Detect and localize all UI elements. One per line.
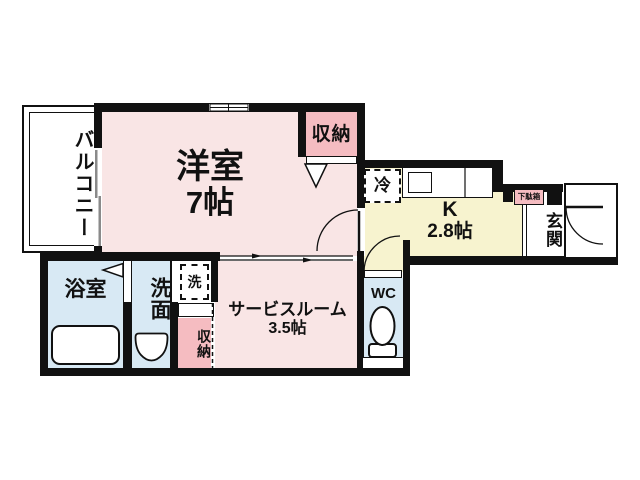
bath-door-channel <box>123 261 132 302</box>
top-window-gap <box>209 104 249 111</box>
wc-door-bar <box>364 270 402 278</box>
bathtub <box>51 325 120 365</box>
refrigerator-label: 冷 <box>374 177 391 195</box>
kitchen-size: 2.8帖 <box>390 222 510 242</box>
western-room-floor-strip <box>218 252 357 256</box>
wall-wash-closet <box>170 302 178 368</box>
wall-wc-right <box>403 240 410 376</box>
western-room-label: 洋室 7帖 <box>95 150 325 219</box>
washer-box: 洗 <box>180 264 209 300</box>
wall-bottom-left <box>40 368 410 376</box>
kitchen-sink <box>408 172 432 193</box>
service-room-name: サービスルーム <box>214 301 361 319</box>
service-room-label: サービスルーム 3.5帖 <box>214 301 361 338</box>
wall-washer-right <box>211 261 218 302</box>
closet-bottom-label: 収納 <box>178 321 211 367</box>
closet-top-label: 収納 <box>304 125 359 145</box>
washer-label: 洗 <box>188 275 202 290</box>
shoe-cabinet: 下駄箱 <box>514 189 544 205</box>
refrigerator-box: 冷 <box>364 169 401 203</box>
service-room-size: 3.5帖 <box>214 321 361 338</box>
front-door-recess <box>564 183 618 259</box>
wall-middle-left <box>40 252 220 261</box>
floor-plan: 冷 洗 下駄箱 <box>0 0 640 480</box>
western-room-name: 洋室 <box>95 150 325 186</box>
kitchen-name: K <box>390 199 510 221</box>
kitchen-label: K 2.8帖 <box>390 199 510 242</box>
wall-bath-wash-lower <box>123 302 132 368</box>
wc-label: WC <box>364 286 403 302</box>
wall-outer-left-lower <box>40 252 48 376</box>
washroom-label: 洗面 <box>132 268 170 330</box>
western-room-size: 7帖 <box>95 187 325 220</box>
wc-bottom-vent <box>362 357 404 369</box>
bathroom-label: 浴室 <box>48 279 123 301</box>
shoe-cabinet-label: 下駄箱 <box>518 193 541 201</box>
balcony-label: バルコニー <box>30 119 92 249</box>
closet-bottom-door <box>178 303 214 317</box>
entrance-label: 玄関 <box>527 204 561 256</box>
